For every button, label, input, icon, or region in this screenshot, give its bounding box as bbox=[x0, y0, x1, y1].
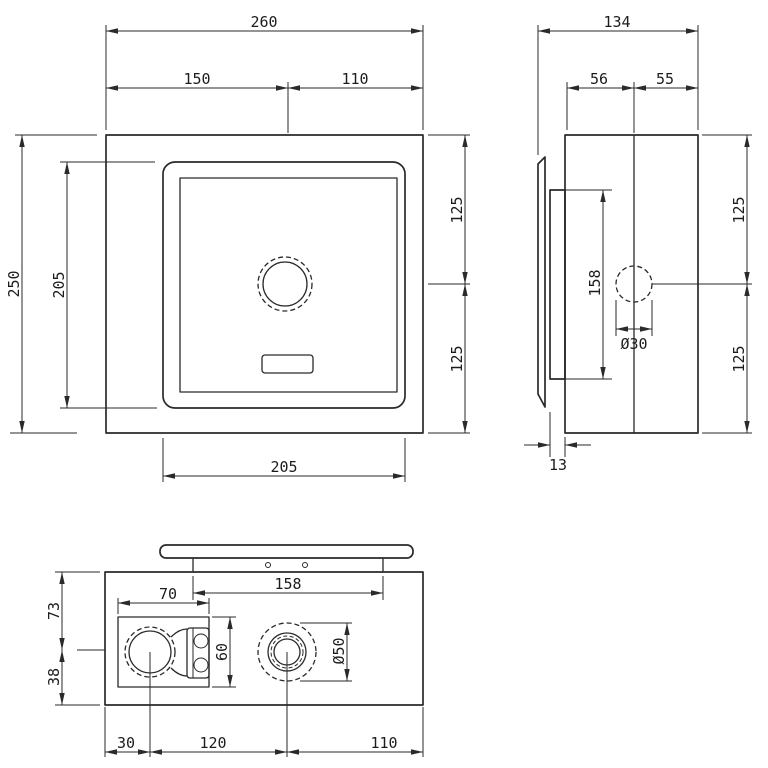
front-inner-panel bbox=[180, 178, 397, 392]
bottom-view-dimensions: 158 70 60 Ø50 73 38 30 120 110 bbox=[45, 572, 423, 757]
dim-side-total-depth: 134 bbox=[603, 13, 630, 31]
bottom-flange-plate bbox=[160, 545, 413, 558]
dim-bottom-inlet-to-bottom: 38 bbox=[45, 668, 63, 686]
side-face-plate bbox=[538, 157, 545, 407]
cad-drawing-svg: 260 150 110 250 205 205 125 125 bbox=[0, 0, 768, 768]
side-view-dimensions: 134 56 55 158 Ø30 13 125 125 bbox=[524, 13, 752, 474]
dim-front-sensor-to-bottom: 125 bbox=[448, 345, 466, 372]
coupling-bolt-top bbox=[194, 634, 208, 648]
front-view-dimensions: 260 150 110 250 205 205 125 125 bbox=[5, 13, 470, 482]
dim-bottom-inlet-to-top: 73 bbox=[45, 602, 63, 620]
dim-bottom-edge-to-inlet: 30 bbox=[117, 734, 135, 752]
dim-front-offset-right: 110 bbox=[341, 70, 368, 88]
dim-bottom-flange-width: 158 bbox=[274, 575, 301, 593]
dim-bottom-inlet-to-outlet: 120 bbox=[199, 734, 226, 752]
dim-front-total-height: 250 bbox=[5, 270, 23, 297]
inlet-neck-bottom bbox=[171, 668, 187, 676]
front-face-plate bbox=[163, 162, 405, 408]
front-view: 260 150 110 250 205 205 125 125 bbox=[5, 13, 470, 482]
dim-side-hole-diameter: Ø30 bbox=[620, 335, 647, 353]
dim-side-sensor-to-top: 125 bbox=[730, 196, 748, 223]
dim-front-plate-height: 205 bbox=[50, 271, 68, 298]
dim-side-mounting-height: 158 bbox=[586, 269, 604, 296]
dim-bottom-outlet-diameter: Ø50 bbox=[330, 637, 348, 664]
dim-side-sensor-to-bottom: 125 bbox=[730, 345, 748, 372]
bottom-view: 158 70 60 Ø50 73 38 30 120 110 bbox=[45, 545, 423, 757]
side-mounting-box bbox=[550, 190, 565, 379]
front-body-outline bbox=[106, 135, 423, 433]
side-view: 134 56 55 158 Ø30 13 125 125 bbox=[524, 13, 752, 474]
dim-front-sensor-to-top: 125 bbox=[448, 196, 466, 223]
dim-side-wall-thickness: 13 bbox=[549, 456, 567, 474]
inlet-neck-top bbox=[171, 629, 187, 637]
front-view-outline bbox=[106, 135, 423, 433]
flange-screw-hole-right bbox=[303, 563, 308, 568]
dim-front-total-width: 260 bbox=[250, 13, 277, 31]
dim-bottom-valve-height: 60 bbox=[213, 643, 231, 661]
dim-side-depth-front: 56 bbox=[590, 70, 608, 88]
dim-bottom-valve-width: 70 bbox=[159, 585, 177, 603]
indicator-window bbox=[262, 355, 313, 373]
dim-front-plate-width: 205 bbox=[270, 458, 297, 476]
technical-drawing-canvas: 260 150 110 250 205 205 125 125 bbox=[0, 0, 768, 768]
flange-screw-hole-left bbox=[266, 563, 271, 568]
bottom-view-outline bbox=[105, 545, 423, 757]
sensor-window-inner-circle bbox=[263, 262, 307, 306]
dim-bottom-outlet-to-edge: 110 bbox=[370, 734, 397, 752]
dim-side-depth-back: 55 bbox=[656, 70, 674, 88]
dim-front-offset-left: 150 bbox=[183, 70, 210, 88]
bottom-body-outline bbox=[105, 572, 423, 705]
coupling-bolt-bottom bbox=[194, 658, 208, 672]
sensor-window-outer-circle bbox=[258, 257, 312, 311]
